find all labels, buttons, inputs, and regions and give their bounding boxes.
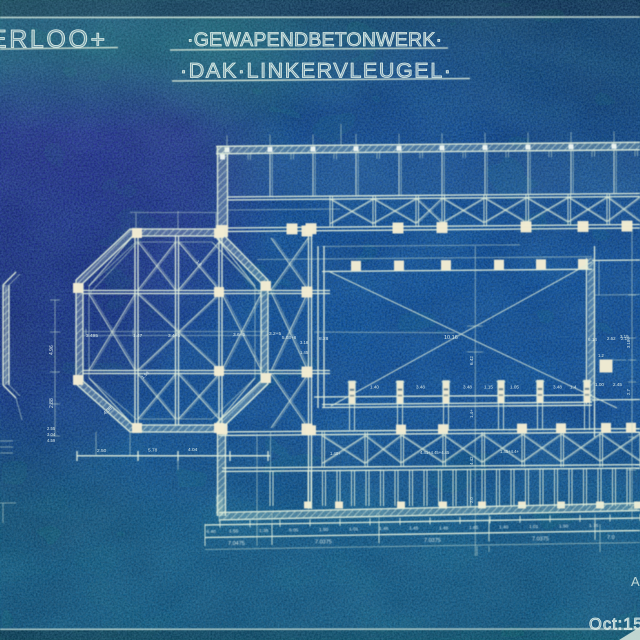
svg-text:ERLOO+: ERLOO+ [0, 26, 108, 54]
svg-text:5.78: 5.78 [148, 448, 158, 454]
svg-text:·GEWAPENDBETONWERK·: ·GEWAPENDBETONWERK· [187, 29, 442, 51]
svg-text:6.14: 6.14 [588, 337, 597, 342]
svg-text:3.48: 3.48 [416, 385, 425, 390]
svg-text:1.2: 1.2 [598, 353, 604, 358]
svg-text:7.0375: 7.0375 [424, 538, 441, 544]
svg-text:4.42: 4.42 [469, 456, 474, 465]
svg-text:3.19: 3.19 [620, 334, 629, 339]
svg-text:1.45: 1.45 [409, 526, 419, 532]
svg-text:7.0: 7.0 [607, 535, 615, 541]
svg-text:1.65: 1.65 [469, 525, 479, 531]
svg-text:1.55: 1.55 [229, 529, 239, 535]
svg-text:1.47: 1.47 [133, 333, 143, 339]
svg-text:2.7: 2.7 [626, 389, 631, 395]
svg-text:2.55: 2.55 [47, 426, 56, 431]
svg-text:1.01: 1.01 [529, 524, 539, 530]
svg-text:8.28: 8.28 [319, 336, 329, 342]
svg-text:4.41+4.45+4.45: 4.41+4.45+4.45 [420, 450, 450, 455]
svg-text:1.75: 1.75 [589, 523, 599, 529]
svg-text:3.2+5: 3.2+5 [269, 331, 281, 337]
svg-text:10.16: 10.16 [444, 335, 458, 341]
svg-text:3.6+5: 3.6+5 [233, 332, 245, 338]
svg-text:3.495: 3.495 [86, 333, 98, 339]
svg-text:7.0375: 7.0375 [532, 536, 549, 542]
svg-text:2.0: 2.0 [469, 497, 474, 503]
svg-text:1.40: 1.40 [370, 385, 379, 390]
svg-text:1.15: 1.15 [484, 385, 493, 390]
svg-text:1.38: 1.38 [259, 528, 269, 534]
svg-text:4.04: 4.04 [188, 447, 198, 453]
svg-text:3.4+5: 3.4+5 [168, 333, 180, 339]
svg-text:6.05: 6.05 [289, 528, 299, 534]
svg-text:1.40: 1.40 [499, 524, 509, 530]
svg-text:Oct:15: Oct:15 [589, 616, 640, 634]
svg-text:2.50: 2.50 [97, 448, 107, 454]
svg-text:3.48: 3.48 [553, 385, 562, 390]
svg-text:6.42: 6.42 [469, 356, 474, 365]
svg-text:·DAK·LINKERVLEUGEL·: ·DAK·LINKERVLEUGEL· [180, 59, 453, 83]
svg-text:1.4+: 1.4+ [469, 409, 474, 418]
svg-text:6.40: 6.40 [207, 529, 217, 535]
svg-text:1.45+4.4+: 1.45+4.4+ [500, 449, 519, 454]
svg-text:1.40+: 1.40+ [330, 451, 341, 456]
svg-text:1.01: 1.01 [349, 527, 359, 533]
svg-text:7.0375: 7.0375 [315, 540, 332, 546]
svg-text:2.45: 2.45 [613, 382, 622, 387]
svg-text:3.18: 3.18 [300, 340, 309, 345]
svg-text:1.00: 1.00 [595, 382, 604, 387]
svg-text:1.50: 1.50 [559, 523, 569, 529]
svg-text:4.96: 4.96 [49, 345, 55, 355]
svg-text:3.18: 3.18 [626, 339, 631, 348]
svg-text:1.50: 1.50 [319, 527, 329, 533]
svg-text:1.4: 1.4 [570, 385, 577, 390]
svg-text:5.03+8: 5.03+8 [282, 335, 297, 340]
svg-text:1.48: 1.48 [379, 526, 389, 532]
svg-text:1.05: 1.05 [510, 385, 519, 390]
svg-text:4.59: 4.59 [47, 438, 56, 443]
svg-text:1.45: 1.45 [300, 350, 309, 355]
svg-text:2.88: 2.88 [49, 398, 55, 408]
svg-text:7.0475: 7.0475 [228, 541, 245, 547]
svg-text:3.48: 3.48 [463, 385, 472, 390]
svg-text:2.62: 2.62 [607, 336, 616, 341]
svg-text:3.04: 3.04 [47, 432, 56, 437]
svg-text:A: A [631, 574, 640, 589]
svg-text:1.48: 1.48 [439, 525, 449, 531]
